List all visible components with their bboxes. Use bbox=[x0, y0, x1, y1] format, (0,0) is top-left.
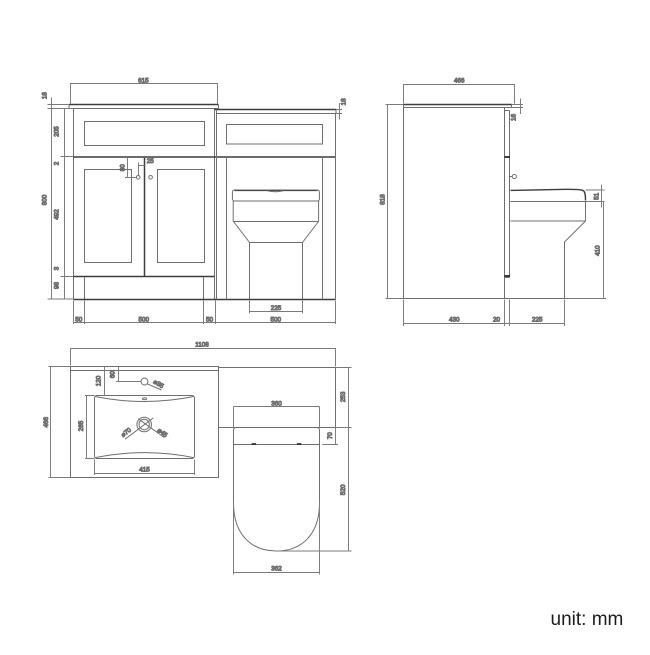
svg-text:50: 50 bbox=[206, 317, 214, 324]
svg-text:410: 410 bbox=[595, 245, 602, 256]
svg-text:20: 20 bbox=[493, 317, 501, 324]
svg-text:2: 2 bbox=[54, 161, 61, 165]
svg-text:16: 16 bbox=[511, 114, 518, 122]
svg-text:415: 415 bbox=[139, 467, 150, 474]
svg-text:18: 18 bbox=[42, 92, 49, 100]
svg-text:466: 466 bbox=[43, 416, 50, 427]
svg-text:265: 265 bbox=[78, 420, 85, 431]
svg-text:98: 98 bbox=[54, 282, 61, 290]
svg-text:1108: 1108 bbox=[195, 341, 209, 348]
svg-text:466: 466 bbox=[454, 78, 465, 85]
svg-text:430: 430 bbox=[449, 317, 460, 324]
svg-text:60: 60 bbox=[110, 371, 117, 379]
svg-text:25: 25 bbox=[147, 158, 155, 165]
svg-text:unit: mm: unit: mm bbox=[551, 609, 624, 630]
svg-text:520: 520 bbox=[340, 484, 347, 495]
svg-text:492: 492 bbox=[54, 209, 61, 220]
svg-text:51: 51 bbox=[594, 192, 601, 200]
svg-text:360: 360 bbox=[271, 400, 282, 407]
svg-text:120: 120 bbox=[96, 375, 103, 386]
svg-text:362: 362 bbox=[271, 566, 282, 573]
svg-text:18: 18 bbox=[340, 98, 347, 106]
svg-text:3: 3 bbox=[54, 266, 61, 270]
svg-text:253: 253 bbox=[340, 391, 347, 402]
svg-text:500: 500 bbox=[270, 317, 281, 324]
svg-text:225: 225 bbox=[532, 317, 543, 324]
svg-text:225: 225 bbox=[271, 305, 282, 312]
svg-text:800: 800 bbox=[42, 194, 49, 205]
svg-text:615: 615 bbox=[138, 77, 149, 84]
svg-text:818: 818 bbox=[380, 194, 387, 205]
svg-text:50: 50 bbox=[75, 317, 83, 324]
svg-text:500: 500 bbox=[139, 317, 150, 324]
svg-text:70: 70 bbox=[327, 432, 334, 440]
svg-text:80: 80 bbox=[119, 164, 126, 172]
svg-text:205: 205 bbox=[54, 126, 61, 137]
